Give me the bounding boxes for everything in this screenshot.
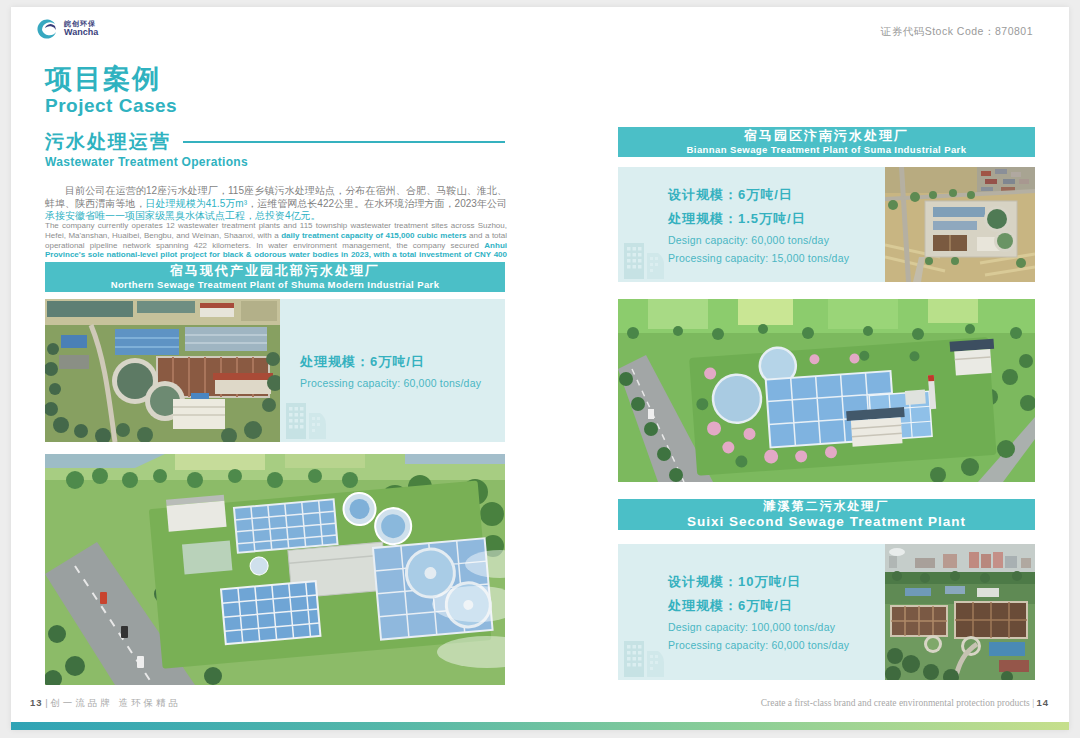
intro-cn-text: ，运维管网总长422公里。在水环境治理方面，2023年公司 [247, 198, 507, 209]
project-stats-shuma-north: 处理规模：6万吨/日 Processing capacity: 60,000 t… [280, 299, 505, 442]
project-name-cn: 宿马园区汴南污水处理厂 [744, 128, 909, 144]
project-banner-shuma-north: 宿马现代产业园北部污水处理厂 Northern Sewage Treatment… [45, 262, 505, 292]
aerial-plant-illustration [885, 544, 1035, 680]
design-capacity-en: Design capacity: 60,000 tons/day [668, 234, 885, 246]
plant-render-biannan-large [618, 299, 1035, 482]
processing-capacity-en: Processing capacity: 15,000 tons/day [668, 252, 885, 264]
buildings-watermark-icon [622, 239, 668, 279]
page-title-cn: 项目案例 [45, 65, 177, 95]
plant-photo-biannan [885, 167, 1035, 282]
plant-render-shuma-north-large [45, 454, 505, 685]
processing-capacity-en: Processing capacity: 60,000 tons/day [668, 639, 885, 651]
footer-slogan-cn: 创一流品牌 造环保精品 [50, 697, 181, 708]
project-banner-suixi: 濉溪第二污水处理厂 Suixi Second Sewage Treatment … [618, 499, 1035, 530]
project-name-en: Suixi Second Sewage Treatment Plant [687, 514, 966, 531]
footer-slogan-en: Create a first-class brand and create en… [761, 698, 1030, 708]
intro-paragraph-cn: 目前公司在运营的12座污水处理厂，115座乡镇污水处理站点，分布在宿州、合肥、马… [45, 185, 507, 223]
project-row-shuma-north: 处理规模：6万吨/日 Processing capacity: 60,000 t… [45, 299, 505, 442]
section-rule [183, 141, 505, 143]
project-banner-biannan: 宿马园区汴南污水处理厂 Biannan Sewage Treatment Pla… [618, 127, 1035, 157]
project-name-en: Northern Sewage Treatment Plant of Shuma… [111, 279, 440, 291]
aerial-plant-illustration [885, 167, 1035, 282]
page-number-right: 14 [1036, 697, 1049, 708]
project-name-en: Biannan Sewage Treatment Plant of Suma I… [687, 144, 967, 156]
plant-render-illustration [45, 454, 505, 685]
plant-photo-shuma-north [45, 299, 280, 442]
footer-gradient-bar [11, 722, 1069, 730]
aerial-plant-illustration [45, 299, 280, 442]
brochure-page: 皖创环保 Wancha 证券代码Stock Code：870801 项目案例 P… [0, 0, 1080, 738]
logo-name-en: Wancha [64, 28, 98, 38]
section-heading-en: Wastewater Treatment Operations [45, 155, 248, 169]
processing-capacity-cn: 处理规模：1.5万吨/日 [668, 210, 885, 228]
company-logo: 皖创环保 Wancha [35, 18, 98, 40]
processing-capacity-en: Processing capacity: 60,000 tons/day [300, 377, 505, 389]
project-name-cn: 宿马现代产业园北部污水处理厂 [170, 263, 380, 279]
section-heading: 污水处理运营 [45, 129, 505, 155]
logo-swirl-icon [35, 18, 59, 40]
footer-divider: | [45, 697, 47, 708]
buildings-watermark-icon [622, 637, 668, 677]
processing-capacity-cn: 处理规模：6万吨/日 [300, 353, 505, 371]
footer-right: Create a first-class brand and create en… [761, 697, 1049, 708]
footer-divider: | [1032, 698, 1034, 708]
project-name-cn: 濉溪第二污水处理厂 [764, 499, 890, 514]
page-title-en: Project Cases [45, 95, 177, 118]
project-row-biannan: 设计规模：6万吨/日 处理规模：1.5万吨/日 Design capacity:… [618, 167, 1035, 282]
design-capacity-en: Design capacity: 100,000 tons/day [668, 621, 885, 633]
processing-capacity-cn: 处理规模：6万吨/日 [668, 597, 885, 615]
plant-photo-suixi [885, 544, 1035, 680]
project-stats-suixi: 设计规模：10万吨/日 处理规模：6万吨/日 Design capacity: … [618, 544, 885, 680]
plant-render-illustration [618, 299, 1035, 482]
footer-left: 13 | 创一流品牌 造环保精品 [30, 697, 181, 710]
page-title: 项目案例 Project Cases [45, 65, 177, 117]
stock-code: 证券代码Stock Code：870801 [881, 25, 1033, 39]
section-heading-cn: 污水处理运营 [45, 129, 171, 155]
page-number-left: 13 [30, 697, 43, 708]
design-capacity-cn: 设计规模：10万吨/日 [668, 573, 885, 591]
design-capacity-cn: 设计规模：6万吨/日 [668, 186, 885, 204]
intro-en-highlight-capacity: daily treatment capacity of 415,000 cubi… [281, 231, 466, 240]
buildings-watermark-icon [284, 399, 330, 439]
intro-cn-highlight-project: 承接安徽省唯一一项国家级黑臭水体试点工程，总投资4亿元。 [45, 210, 321, 221]
project-stats-biannan: 设计规模：6万吨/日 处理规模：1.5万吨/日 Design capacity:… [618, 167, 885, 282]
page-sheet: 皖创环保 Wancha 证券代码Stock Code：870801 项目案例 P… [11, 7, 1069, 730]
intro-cn-highlight-capacity: 日处理规模为41.5万m³ [145, 198, 247, 209]
project-row-suixi: 设计规模：10万吨/日 处理规模：6万吨/日 Design capacity: … [618, 544, 1035, 680]
